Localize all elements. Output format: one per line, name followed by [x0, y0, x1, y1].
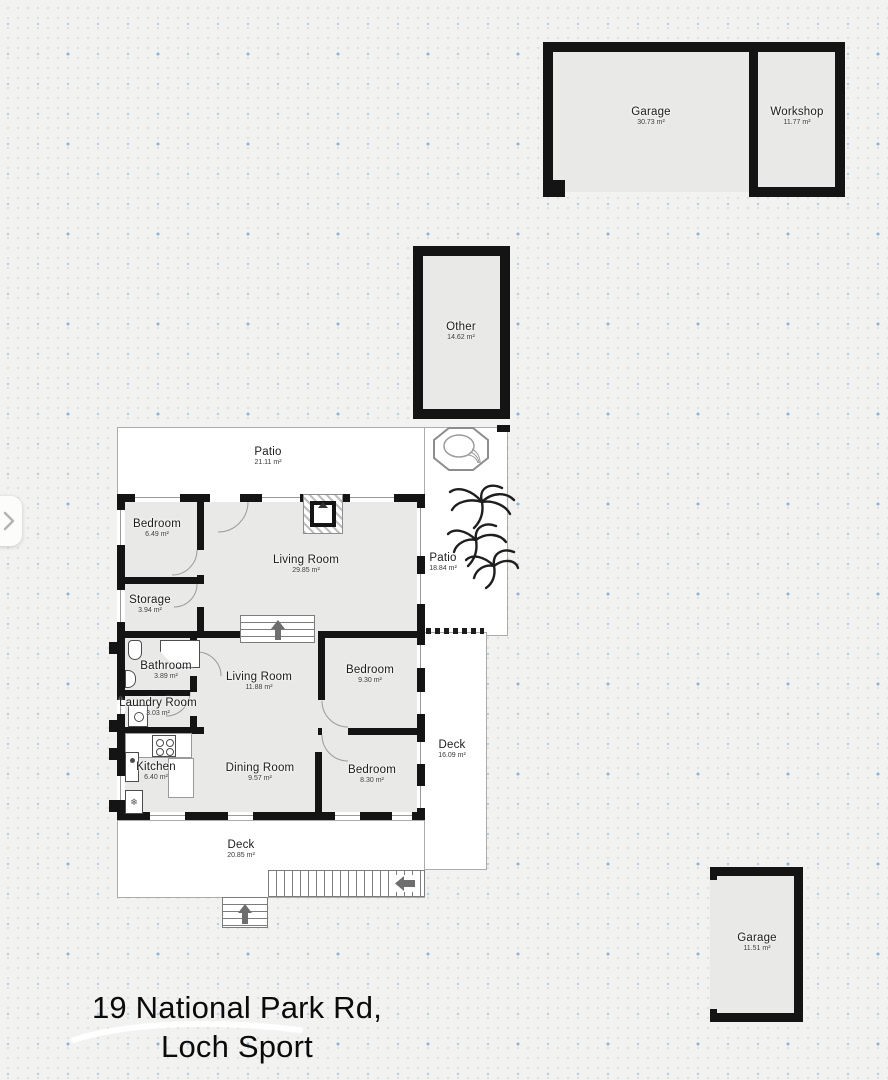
window — [417, 574, 425, 604]
window — [117, 700, 125, 714]
wall-segment — [543, 42, 845, 52]
window — [417, 786, 425, 808]
burner — [156, 739, 164, 747]
fridge-fixture: ❄ — [125, 790, 143, 814]
window — [417, 508, 425, 556]
wall-segment — [109, 642, 117, 654]
wall-segment — [197, 575, 204, 584]
wall-segment — [749, 187, 845, 197]
address-line-1: 19 National Park Rd, — [42, 988, 432, 1027]
wall-segment — [413, 246, 423, 419]
window — [262, 494, 300, 502]
wall-segment — [497, 425, 510, 432]
window — [117, 510, 125, 545]
room-fill-garage-bottom — [710, 876, 794, 1013]
window — [335, 812, 360, 820]
burner — [156, 748, 164, 756]
stairs-deck-small — [222, 897, 268, 928]
palm-trees-illustration — [446, 482, 520, 590]
floorplan-page: { "title": { "line1": "19 National Park … — [0, 0, 888, 1080]
stairs-deck-long — [268, 870, 425, 897]
room-fill-workshop — [757, 50, 837, 187]
wall-segment — [197, 502, 204, 550]
bathtub-fixture — [160, 640, 200, 668]
wall-segment — [835, 42, 845, 197]
washing-machine-fixture — [128, 705, 148, 727]
window — [392, 812, 412, 820]
wall-segment — [109, 720, 117, 732]
fireplace-icon — [303, 494, 343, 534]
window — [228, 812, 253, 820]
wall-segment — [543, 180, 565, 197]
window — [417, 692, 425, 714]
wall-segment — [348, 728, 417, 735]
patio-top-area — [117, 427, 425, 496]
door-opening — [210, 494, 240, 502]
washer-door — [134, 712, 144, 722]
wall-segment — [413, 246, 510, 256]
wall-segment — [190, 716, 197, 727]
room-fill-garage-top — [551, 50, 751, 192]
deck-boundary-dashed-line — [426, 628, 484, 634]
address-title: 19 National Park Rd, Loch Sport — [42, 988, 432, 1066]
wall-segment — [109, 800, 117, 812]
window — [417, 742, 425, 764]
window — [117, 776, 125, 800]
wall-segment — [749, 50, 758, 197]
wall-segment — [794, 867, 803, 1022]
faucet — [130, 758, 135, 763]
address-line-2: Loch Sport — [42, 1027, 432, 1066]
kitchen-sink-fixture — [125, 752, 139, 782]
window — [350, 494, 394, 502]
wall-segment — [543, 42, 553, 190]
wall-segment — [413, 409, 510, 419]
kitchen-counter — [168, 758, 194, 798]
chevron-right-icon — [2, 510, 16, 532]
wall-segment — [710, 1013, 803, 1022]
wall-segment — [318, 638, 325, 700]
burner — [166, 748, 174, 756]
wall-segment — [125, 577, 197, 584]
wall-segment — [710, 867, 803, 876]
wall-segment — [318, 728, 322, 735]
window — [117, 590, 125, 622]
arrow-up-icon — [237, 903, 253, 925]
wall-segment — [710, 867, 717, 880]
window — [150, 812, 185, 820]
wall-segment — [710, 1009, 717, 1022]
wall-segment — [190, 676, 197, 692]
arrow-up-icon — [270, 619, 286, 641]
sink-fixture — [125, 670, 136, 688]
carousel-next-button[interactable] — [0, 496, 22, 546]
burner — [166, 739, 174, 747]
room-fill-other — [423, 256, 500, 409]
arrow-left-icon — [394, 875, 416, 892]
window — [417, 645, 425, 668]
deck-right-area — [424, 632, 487, 870]
wall-segment — [109, 748, 117, 760]
wall-segment — [315, 752, 322, 812]
wall-segment — [500, 246, 510, 419]
toilet-fixture — [128, 640, 142, 660]
stairs-middle — [240, 615, 315, 643]
wall-segment — [125, 631, 240, 638]
wall-segment — [125, 690, 190, 696]
house-body: ❄ — [117, 494, 425, 820]
window — [135, 494, 180, 502]
hot-tub-illustration — [432, 426, 490, 472]
wall-segment — [318, 631, 417, 638]
stove-fixture — [152, 735, 176, 757]
